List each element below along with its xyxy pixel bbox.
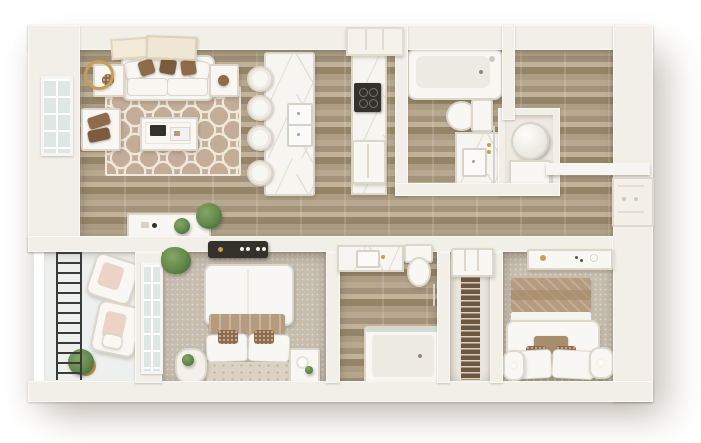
vanity-sink — [462, 148, 487, 177]
bed1-accent-pillow — [254, 330, 274, 344]
bedside-pouf — [589, 347, 614, 379]
wall-bottom — [28, 381, 653, 402]
pouf-lamp-glow — [509, 361, 518, 370]
toilet-bowl — [407, 257, 431, 287]
basket-greenery — [182, 354, 194, 366]
wall-art-frame — [146, 35, 198, 61]
book-detail — [174, 131, 180, 136]
sofa — [121, 55, 215, 101]
table-decor — [218, 75, 229, 86]
tub-drain — [479, 70, 483, 74]
coffee-table — [140, 117, 198, 151]
clothes-rod — [459, 276, 482, 380]
nightstand — [289, 348, 320, 384]
bed2-blanket — [511, 278, 591, 312]
bedroom1-plant — [161, 247, 191, 274]
refrigerator — [352, 140, 386, 184]
french-door — [141, 262, 163, 374]
burner — [369, 99, 378, 108]
tv-decor-dot — [218, 247, 223, 252]
shower-head-icon — [489, 56, 495, 62]
tv-knob — [262, 247, 266, 251]
sink-drain — [472, 160, 475, 163]
glass-partition — [493, 126, 495, 184]
side-table-right — [209, 64, 239, 97]
console-plant — [174, 218, 190, 234]
console-decor — [141, 222, 149, 228]
towel-bar — [433, 284, 435, 306]
tub-basin — [372, 335, 434, 377]
dresser — [527, 249, 613, 270]
sofa-brown-pillow — [159, 58, 177, 76]
panel-dot — [634, 197, 638, 201]
dresser-decor — [591, 255, 597, 261]
sink-drain — [297, 112, 300, 115]
bathtub-2 — [364, 326, 444, 386]
burner — [359, 88, 368, 97]
cabinet-line — [382, 29, 384, 50]
bar-stool — [247, 125, 273, 151]
duvet-seam — [247, 270, 249, 318]
book — [170, 127, 190, 141]
wall-bathroom2-right — [437, 252, 450, 383]
gold-faucet — [381, 255, 385, 259]
tv-knob — [246, 247, 250, 251]
tub-drain — [418, 354, 422, 358]
bedside-pouf — [503, 350, 525, 381]
burner — [359, 99, 368, 108]
chair-cushion — [97, 261, 125, 291]
wall-panel — [612, 177, 654, 227]
window — [41, 76, 73, 156]
chair-pillow — [101, 332, 123, 350]
bar-stool — [247, 95, 273, 121]
burner — [369, 88, 378, 97]
bed1-accent-pillow — [218, 330, 238, 344]
toilet-1 — [446, 99, 490, 129]
dresser-decor — [580, 259, 583, 262]
gold-faucet — [487, 143, 491, 147]
tv-console — [208, 241, 268, 258]
panel-line — [618, 185, 644, 187]
sink-basin — [287, 103, 313, 126]
basket — [175, 348, 207, 384]
panel-line — [618, 211, 644, 213]
pouf-lamp-glow — [596, 358, 606, 368]
shelf-divider — [464, 250, 466, 271]
armchair — [81, 108, 121, 151]
sofa-seat — [167, 78, 208, 96]
bathtub-1 — [407, 48, 503, 100]
wall-art-frame — [110, 37, 148, 61]
sofa-brown-pillow — [180, 59, 197, 76]
tv-knob — [240, 247, 244, 251]
upper-cabinets — [346, 27, 404, 56]
wall-flex-left — [502, 25, 515, 120]
vanity-2 — [337, 245, 404, 272]
dresser-decor — [540, 255, 546, 261]
bed-1 — [204, 262, 290, 382]
toilet-tank — [471, 99, 493, 132]
wall-divider — [28, 236, 613, 252]
blanket-band — [511, 290, 591, 300]
cooktop — [354, 83, 381, 112]
hallway-region — [398, 196, 613, 236]
flower-vase — [298, 358, 307, 367]
wall-bathroom1-bottom — [395, 183, 560, 196]
sink-basin — [287, 124, 313, 147]
bar-stool — [247, 160, 273, 186]
floor-plant — [196, 203, 222, 229]
floorplan-canvas — [0, 0, 701, 443]
closet-shelf-unit — [451, 248, 494, 277]
toilet-2 — [404, 244, 430, 286]
balcony-railing — [56, 252, 82, 380]
dresser-decor — [575, 256, 578, 259]
sink-drain — [297, 133, 300, 136]
fridge-door-line — [367, 144, 369, 178]
glass-panel — [366, 328, 438, 332]
sofa-seat — [127, 78, 168, 96]
gold-mirror — [84, 60, 114, 90]
wall-shelf — [546, 163, 650, 175]
cabinet-line — [365, 29, 367, 50]
book-stack — [150, 125, 166, 136]
flower-greenery — [305, 366, 313, 374]
bar-stool — [247, 66, 273, 92]
tv-knob — [256, 247, 260, 251]
water-heater — [511, 122, 549, 160]
console-decor — [152, 223, 157, 228]
vanity2-sink — [356, 250, 380, 268]
bed1-tufted-headboard — [201, 362, 293, 382]
panel-dot — [622, 197, 626, 201]
gold-faucet — [487, 150, 491, 154]
shelf-divider — [477, 250, 479, 271]
